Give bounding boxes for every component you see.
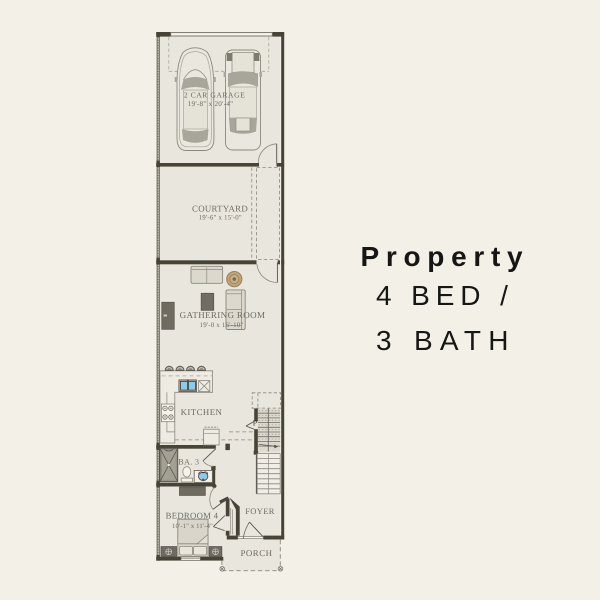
svg-text:19'-8" x 20'-4": 19'-8" x 20'-4" — [188, 100, 234, 108]
svg-text:BA. 3: BA. 3 — [178, 458, 199, 467]
svg-text:BEDROOM 4: BEDROOM 4 — [166, 510, 219, 520]
svg-text:P: P — [253, 418, 258, 427]
svg-text:19'-0 x 16'-10": 19'-0 x 16'-10" — [200, 322, 244, 329]
svg-text:PORCH: PORCH — [240, 548, 272, 558]
svg-text:FOYER: FOYER — [245, 506, 275, 516]
svg-text:COURTYARD: COURTYARD — [192, 204, 248, 214]
svg-text:19'-6" x 15'-0": 19'-6" x 15'-0" — [199, 215, 242, 222]
svg-text:GATHERING ROOM: GATHERING ROOM — [180, 310, 266, 320]
svg-text:KITCHEN: KITCHEN — [181, 407, 223, 417]
svg-text:10'-1" x 11'-4": 10'-1" x 11'-4" — [172, 523, 213, 530]
svg-text:2 CAR GARAGE: 2 CAR GARAGE — [184, 90, 245, 99]
